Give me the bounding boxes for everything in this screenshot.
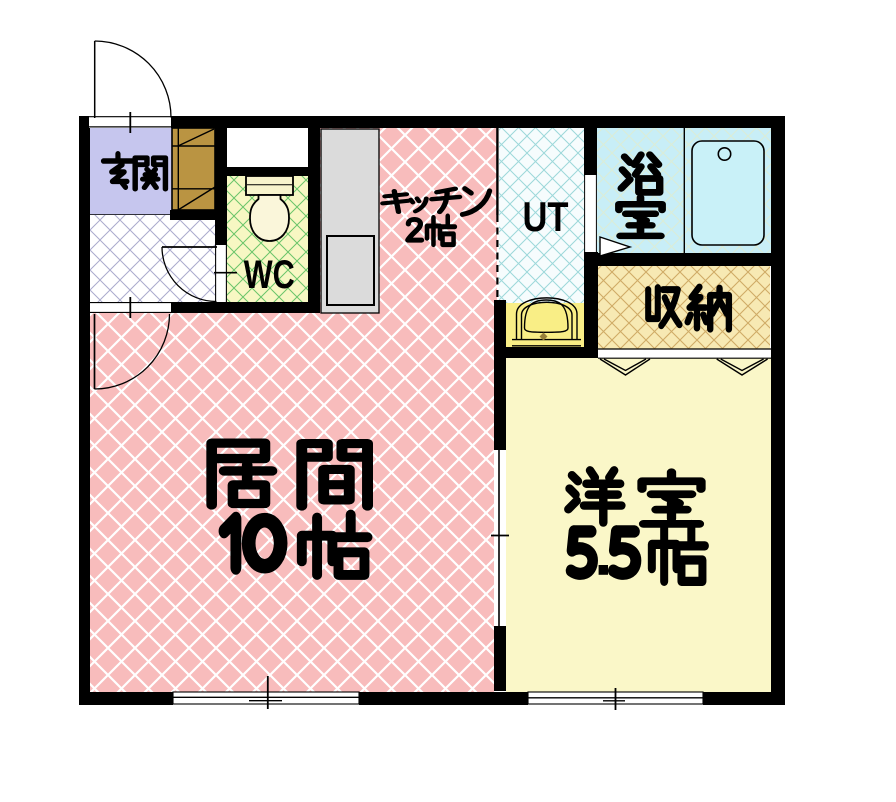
svg-text:WC: WC	[244, 253, 295, 297]
svg-text:UT: UT	[523, 193, 569, 240]
